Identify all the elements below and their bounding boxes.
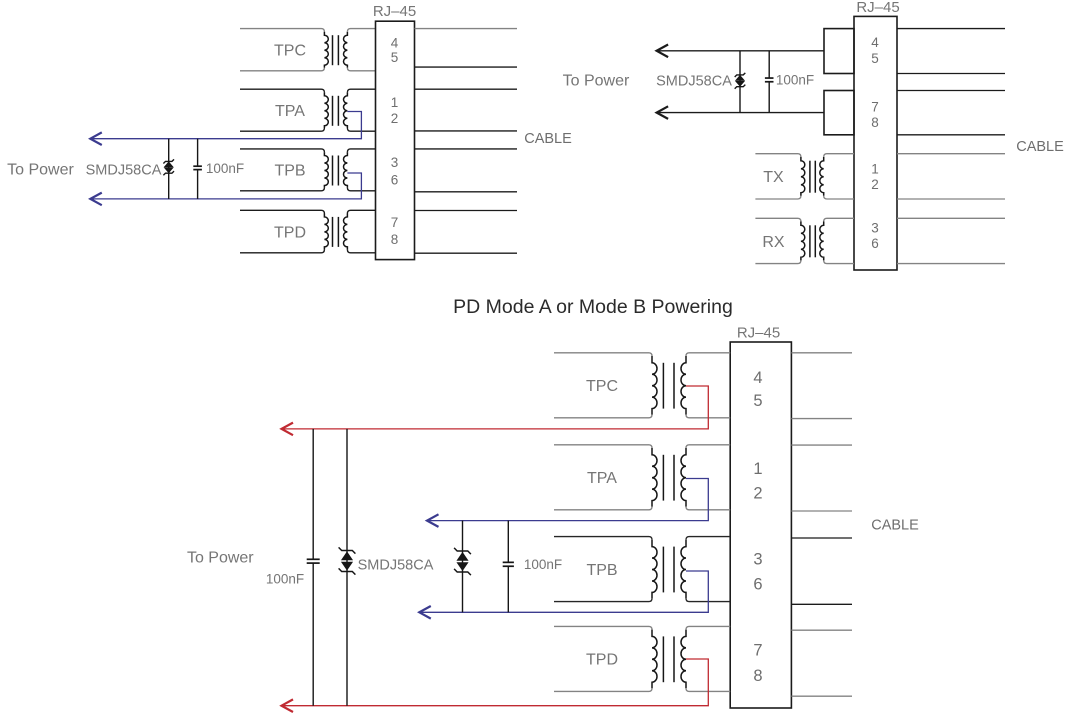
svg-text:PD Mode A or Mode B Powering: PD Mode A or Mode B Powering xyxy=(453,296,733,318)
svg-text:TPD: TPD xyxy=(274,224,306,241)
svg-text:To Power: To Power xyxy=(187,550,254,567)
svg-text:5: 5 xyxy=(871,51,879,66)
svg-text:3: 3 xyxy=(753,551,762,569)
svg-text:TPC: TPC xyxy=(586,378,618,395)
svg-text:4: 4 xyxy=(391,36,399,51)
svg-text:RJ–45: RJ–45 xyxy=(856,0,899,16)
svg-text:RX: RX xyxy=(762,234,785,251)
svg-text:2: 2 xyxy=(753,485,762,503)
svg-text:TPA: TPA xyxy=(587,470,617,487)
svg-text:3: 3 xyxy=(871,221,879,236)
svg-text:CABLE: CABLE xyxy=(871,518,919,534)
svg-text:6: 6 xyxy=(391,172,399,187)
svg-text:SMDJ58CA: SMDJ58CA xyxy=(86,163,162,179)
svg-text:TPB: TPB xyxy=(586,562,617,579)
svg-text:5: 5 xyxy=(753,392,762,410)
svg-text:SMDJ58CA: SMDJ58CA xyxy=(656,74,732,90)
svg-text:6: 6 xyxy=(753,576,762,594)
svg-text:CABLE: CABLE xyxy=(524,131,572,147)
svg-text:TPC: TPC xyxy=(274,43,306,60)
svg-text:100nF: 100nF xyxy=(524,557,562,572)
svg-text:1: 1 xyxy=(753,460,762,478)
svg-text:5: 5 xyxy=(391,50,399,65)
svg-text:To Power: To Power xyxy=(7,162,74,179)
svg-text:1: 1 xyxy=(871,162,879,177)
svg-text:1: 1 xyxy=(391,95,399,110)
svg-text:7: 7 xyxy=(753,641,762,659)
svg-text:8: 8 xyxy=(753,667,762,685)
svg-text:6: 6 xyxy=(871,236,879,251)
svg-text:CABLE: CABLE xyxy=(1016,139,1064,155)
svg-text:To Power: To Power xyxy=(563,73,630,90)
svg-text:SMDJ58CA: SMDJ58CA xyxy=(358,558,434,574)
svg-text:4: 4 xyxy=(871,35,879,50)
svg-text:2: 2 xyxy=(871,177,879,192)
svg-text:100nF: 100nF xyxy=(776,73,814,88)
svg-text:4: 4 xyxy=(753,369,762,387)
svg-text:RJ–45: RJ–45 xyxy=(737,325,780,342)
svg-text:7: 7 xyxy=(871,99,879,114)
svg-text:TPD: TPD xyxy=(586,652,618,669)
svg-text:3: 3 xyxy=(391,155,399,170)
svg-text:8: 8 xyxy=(871,115,879,130)
svg-text:100nF: 100nF xyxy=(206,161,244,176)
svg-text:2: 2 xyxy=(391,111,399,126)
svg-text:100nF: 100nF xyxy=(266,572,304,587)
svg-text:7: 7 xyxy=(391,215,399,230)
svg-text:TPA: TPA xyxy=(275,103,305,120)
svg-text:RJ–45: RJ–45 xyxy=(373,3,416,20)
svg-text:TX: TX xyxy=(763,169,784,186)
svg-text:8: 8 xyxy=(391,232,399,247)
svg-text:TPB: TPB xyxy=(274,163,305,180)
